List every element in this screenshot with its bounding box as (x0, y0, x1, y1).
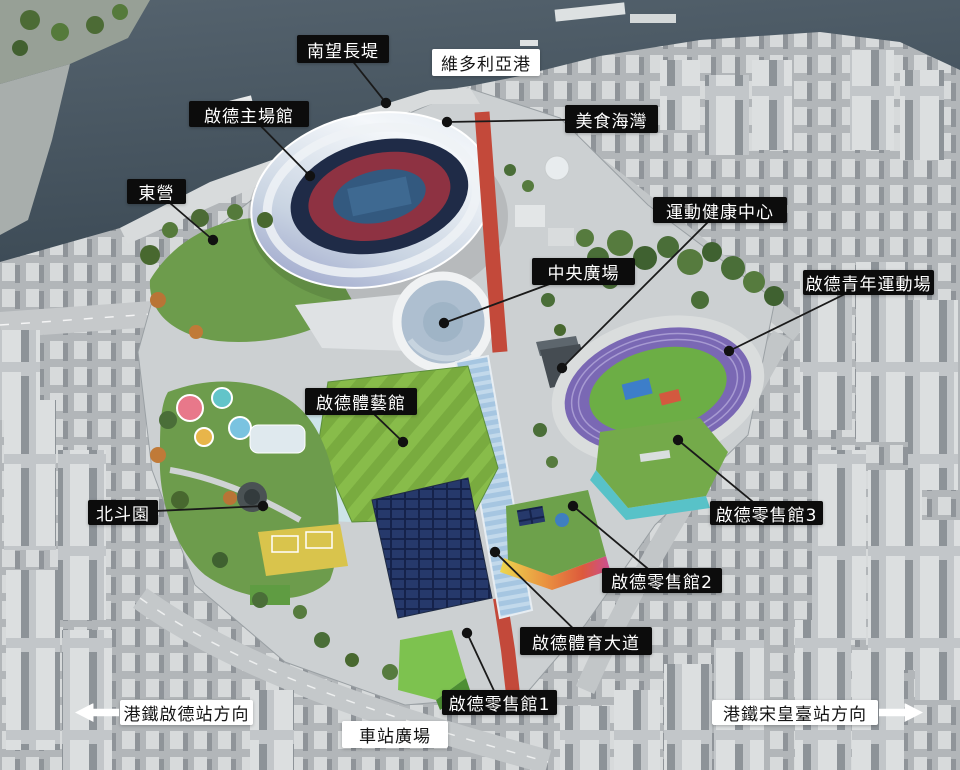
map-label-text: 東營 (139, 179, 175, 204)
map-label-text: 中央廣場 (548, 259, 620, 284)
map-label-11: 啟德零售館3 (710, 501, 823, 525)
map-label-text: 啟德零售館1 (449, 690, 551, 715)
map-label-text: 港鐵宋皇臺站方向 (723, 700, 867, 725)
map-label-text: 啟德零售館2 (611, 568, 713, 593)
map-label-5: 東營 (127, 179, 186, 204)
map-label-2: 維多利亞港 (432, 49, 540, 76)
map-label-13: 啟德體育大道 (520, 627, 652, 655)
map-label-8: 啟德青年運動場 (803, 270, 934, 295)
map-label-text: 啟德零售館3 (716, 501, 818, 526)
map-label-text: 南望長堤 (307, 37, 379, 62)
map-label-16: 車站廣場 (342, 721, 448, 748)
map-label-3: 啟德主場館 (189, 101, 309, 127)
map-label-text: 啟德體藝館 (316, 389, 406, 414)
map-label-text: 車站廣場 (359, 722, 431, 747)
annotation-layer: 南望長堤維多利亞港啟德主場館美食海灣東營運動健康中心中央廣場啟德青年運動場啟德體… (0, 0, 960, 770)
map-label-6: 運動健康中心 (653, 197, 787, 223)
screenshot-root: 南望長堤維多利亞港啟德主場館美食海灣東營運動健康中心中央廣場啟德青年運動場啟德體… (0, 0, 960, 770)
map-label-4: 美食海灣 (565, 105, 658, 133)
map-label-14: 啟德零售館1 (442, 690, 557, 715)
map-label-1: 南望長堤 (297, 35, 389, 63)
map-label-text: 啟德青年運動場 (806, 270, 932, 295)
map-label-text: 北斗園 (96, 500, 150, 525)
map-label-17: 港鐵宋皇臺站方向 (712, 700, 878, 725)
map-label-12: 啟德零售館2 (602, 568, 722, 593)
map-label-text: 美食海灣 (576, 107, 648, 132)
map-label-9: 啟德體藝館 (305, 388, 417, 415)
map-label-text: 運動健康中心 (666, 198, 774, 223)
map-label-10: 北斗園 (88, 500, 158, 525)
map-label-7: 中央廣場 (532, 258, 635, 285)
map-label-15: 港鐵啟德站方向 (120, 700, 253, 725)
arrow-right-icon (879, 703, 923, 722)
map-label-text: 啟德主場館 (204, 102, 294, 127)
map-label-text: 啟德體育大道 (532, 629, 640, 654)
arrow-left-icon (75, 703, 119, 722)
map-label-text: 港鐵啟德站方向 (124, 700, 250, 725)
map-label-text: 維多利亞港 (441, 50, 531, 75)
